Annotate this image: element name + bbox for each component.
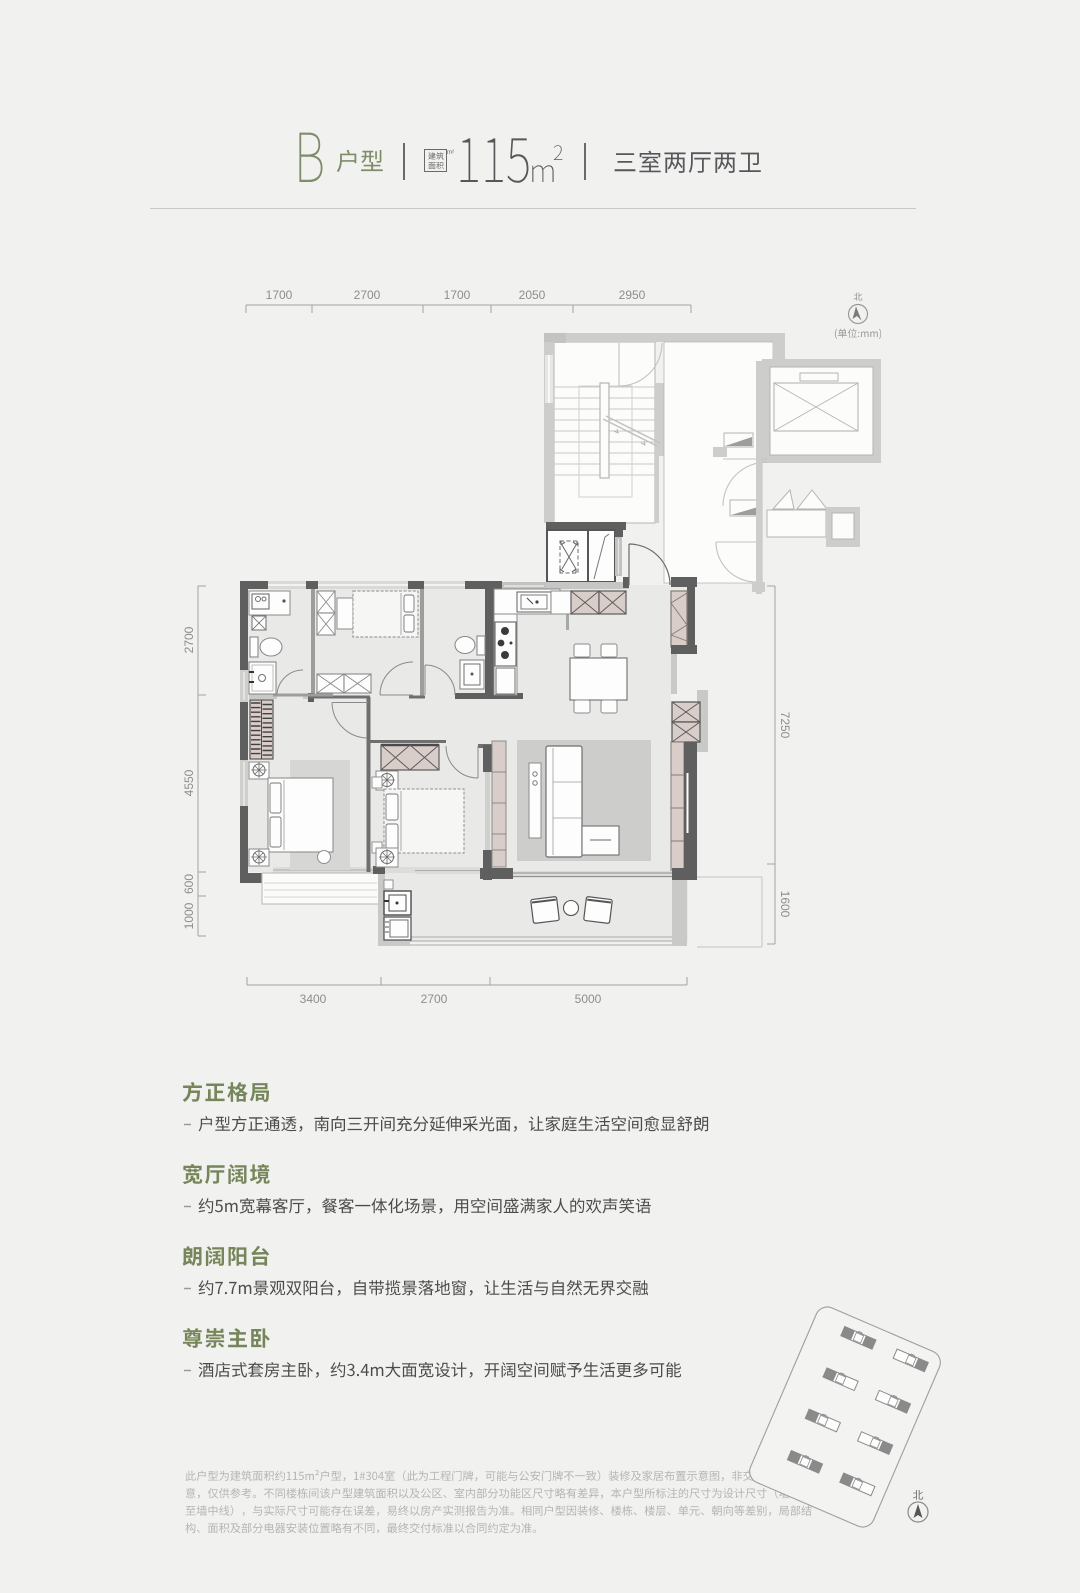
svg-text:1700: 1700 [266, 288, 293, 302]
svg-text:4550: 4550 [182, 769, 196, 796]
svg-text:5000: 5000 [575, 992, 602, 1006]
svg-text:m²: m² [447, 150, 454, 156]
svg-text:1000: 1000 [182, 902, 196, 929]
svg-text:2700: 2700 [182, 626, 196, 653]
svg-text:2050: 2050 [519, 288, 546, 302]
svg-text:2950: 2950 [619, 288, 646, 302]
svg-text:2700: 2700 [421, 992, 448, 1006]
svg-text:2700: 2700 [354, 288, 381, 302]
svg-text:7250: 7250 [778, 712, 792, 739]
svg-text:600: 600 [182, 874, 196, 894]
svg-text:1700: 1700 [444, 288, 471, 302]
svg-text:3400: 3400 [300, 992, 327, 1006]
svg-text:1600: 1600 [778, 891, 792, 918]
